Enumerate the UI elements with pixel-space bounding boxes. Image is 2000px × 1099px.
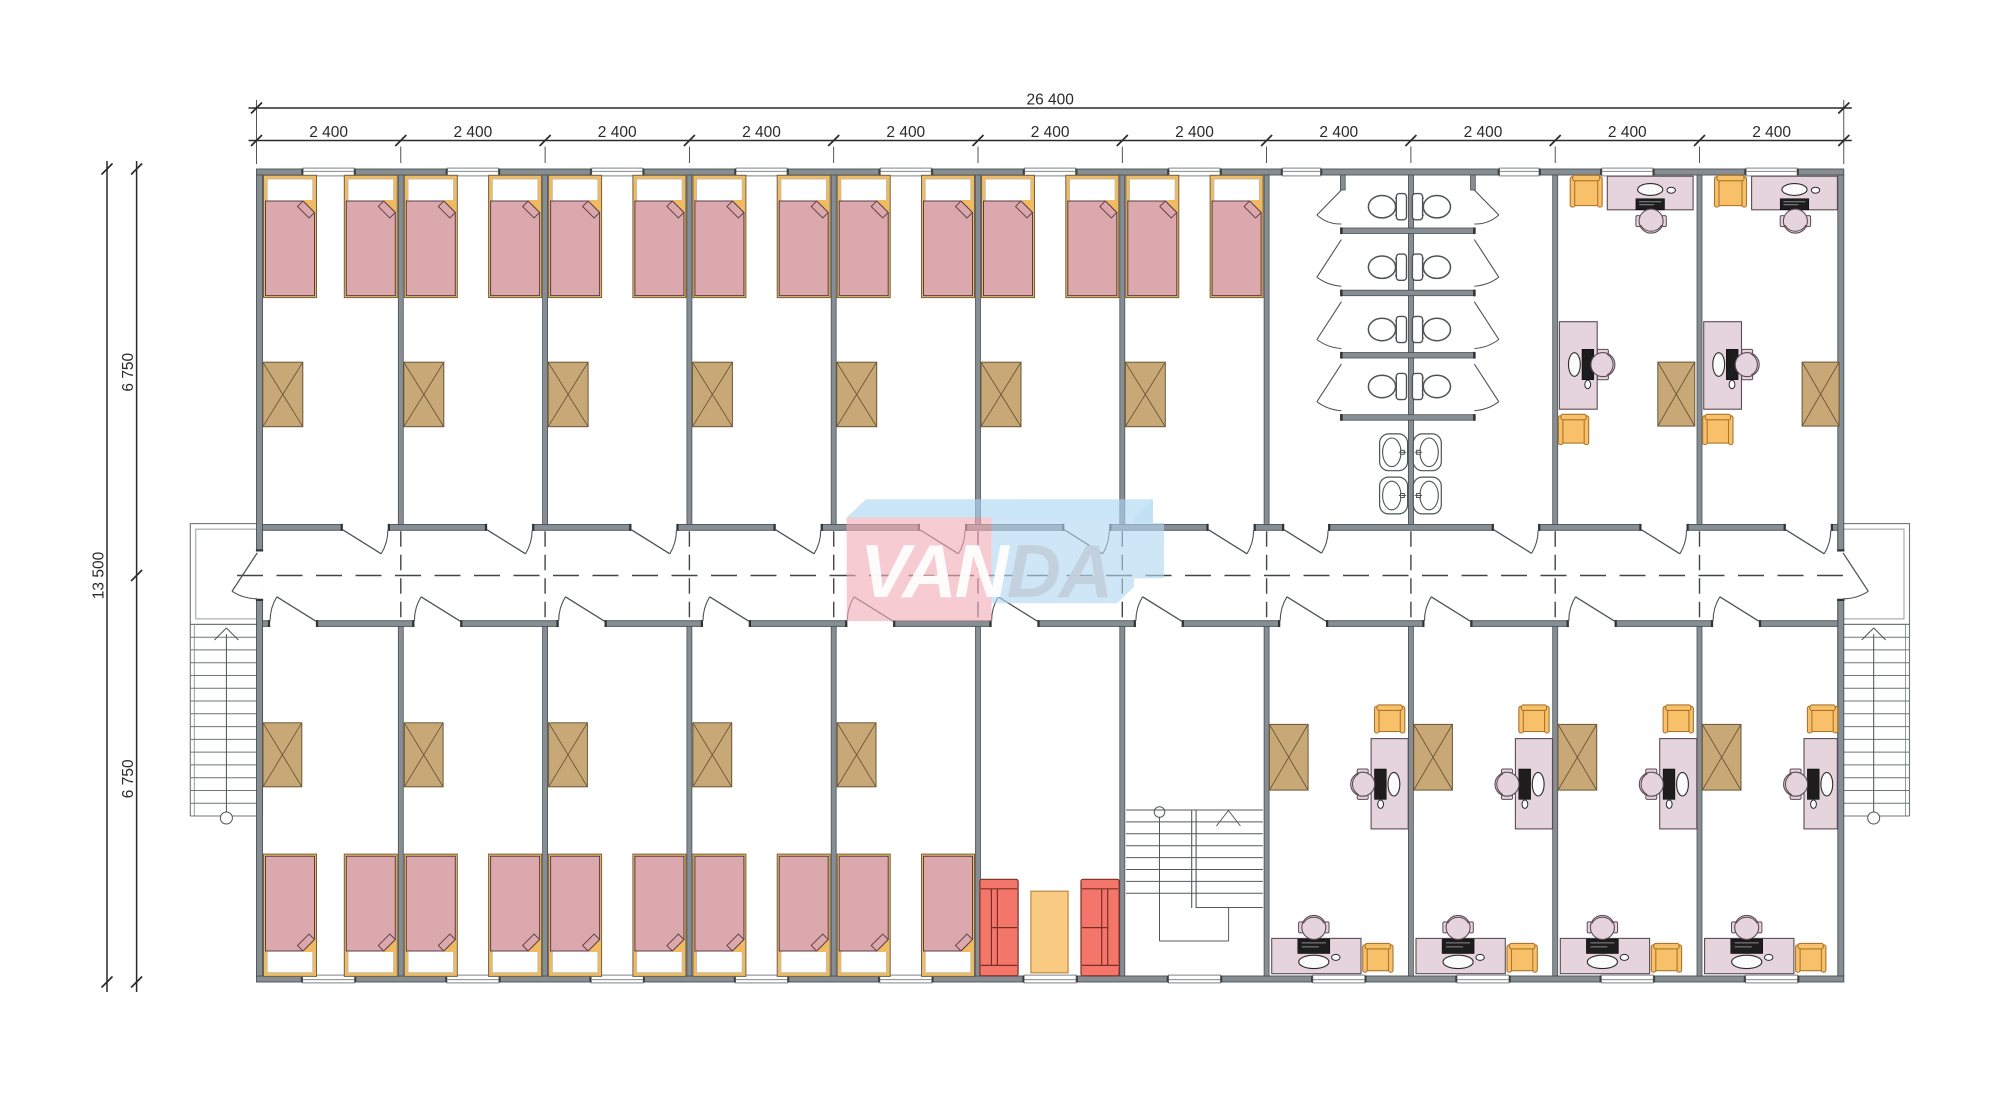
svg-text:2 400: 2 400	[1608, 124, 1647, 141]
svg-text:2 400: 2 400	[454, 124, 493, 141]
svg-text:VANDA: VANDA	[860, 529, 1111, 613]
svg-text:2 400: 2 400	[1319, 124, 1358, 141]
svg-text:2 400: 2 400	[1031, 124, 1070, 141]
svg-text:26 400: 26 400	[1026, 92, 1074, 109]
svg-text:2 400: 2 400	[1464, 124, 1503, 141]
svg-text:2 400: 2 400	[886, 124, 925, 141]
svg-text:6 750: 6 750	[120, 759, 137, 798]
svg-text:13 500: 13 500	[91, 551, 108, 599]
svg-text:2 400: 2 400	[1752, 124, 1791, 141]
svg-text:2 400: 2 400	[598, 124, 637, 141]
svg-text:6 750: 6 750	[120, 352, 137, 391]
svg-text:2 400: 2 400	[742, 124, 781, 141]
svg-text:2 400: 2 400	[309, 124, 348, 141]
svg-text:2 400: 2 400	[1175, 124, 1214, 141]
